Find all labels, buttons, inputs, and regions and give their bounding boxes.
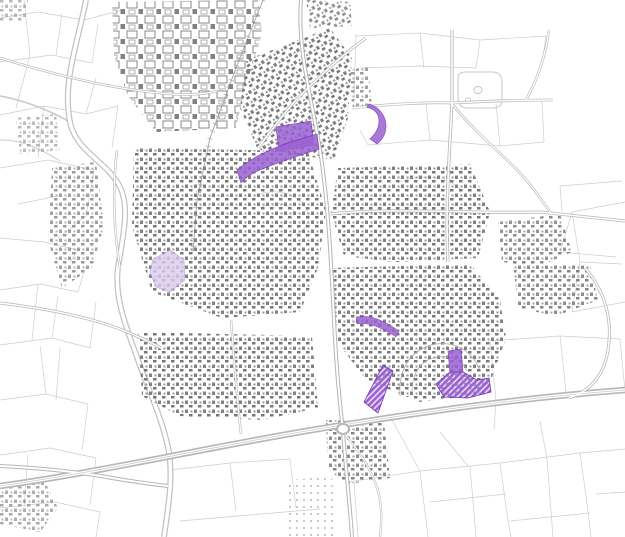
field-mesh-east-mid (490, 336, 625, 430)
urban-south-district (138, 332, 318, 420)
highlight-site-southeast-arm[interactable] (448, 349, 463, 374)
urban-industrial-north (112, 0, 262, 132)
road-west-casing (0, 303, 161, 348)
urban-far-east-cluster (498, 214, 572, 266)
urban-corner-nw (0, 0, 28, 22)
urban-east-hamlet (350, 66, 372, 108)
orchard-dotted-area (284, 477, 336, 537)
map-cutout-top-right (553, 0, 625, 177)
field-mesh-se (348, 420, 625, 537)
roundabout-junction (337, 424, 349, 434)
urban-northwest-hamlet (16, 114, 60, 154)
road-west-core (0, 303, 161, 348)
map-viewport (0, 0, 625, 537)
urban-top-strip (306, 0, 352, 28)
urban-town-centre (132, 148, 326, 318)
pond-1 (474, 87, 482, 94)
map-canvas[interactable] (0, 0, 625, 537)
urban-riverside-west (48, 162, 104, 288)
highlight-site-northeast-crescent[interactable] (367, 104, 386, 144)
